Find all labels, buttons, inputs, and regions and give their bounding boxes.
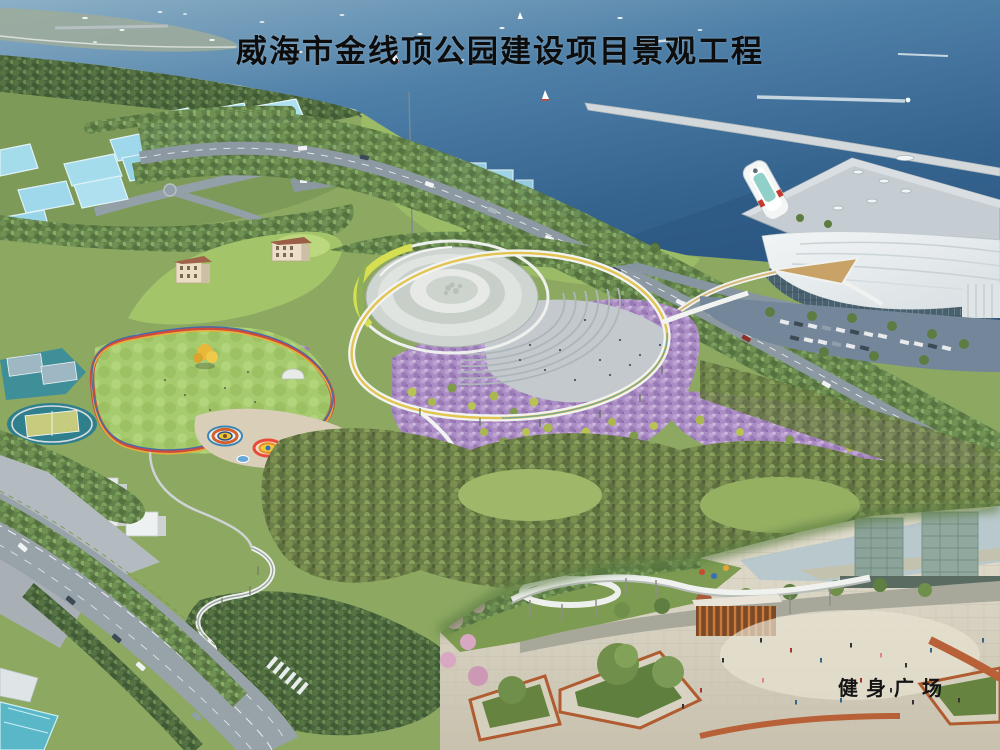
- main-title: 威海市金线顶公园建设项目景观工程: [0, 26, 1000, 71]
- rainbow-ring-1: [208, 427, 242, 446]
- inset-caption-label: 健身广场: [838, 672, 950, 701]
- roundabout: [164, 184, 176, 196]
- scene-art: [0, 0, 1000, 750]
- rendering-canvas: 威海市金线顶公园建设项目景观工程 健身广场: [0, 0, 1000, 750]
